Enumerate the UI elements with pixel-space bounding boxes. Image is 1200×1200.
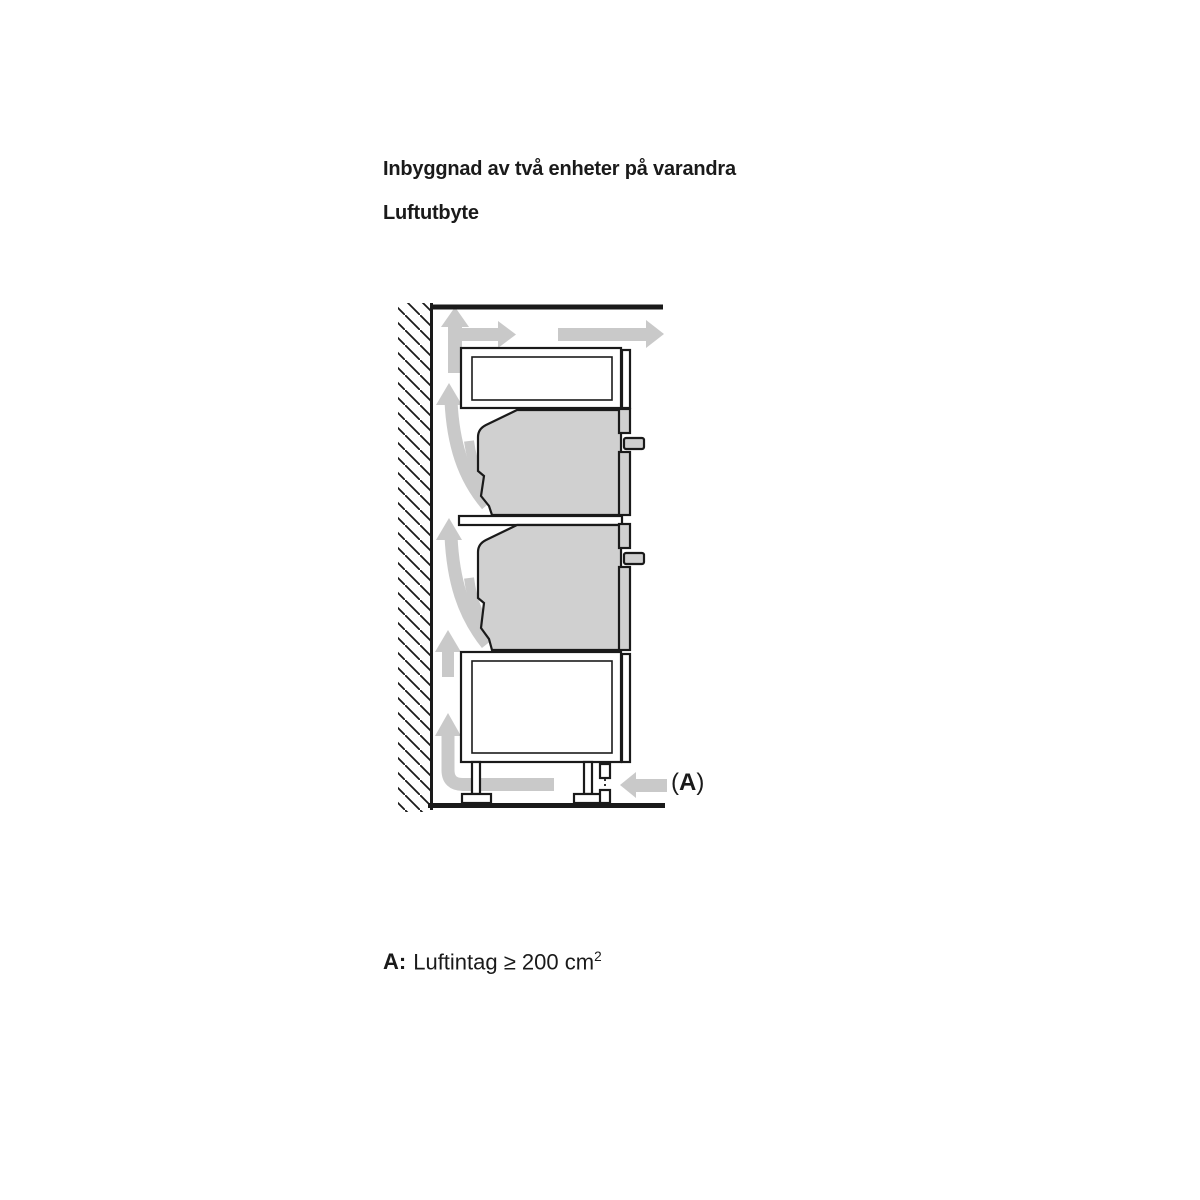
airflow-up-arrow-mid [435, 630, 461, 677]
top-cabinet [461, 348, 630, 408]
caption-superscript: 2 [594, 949, 602, 964]
oven-door-lower [619, 567, 630, 650]
lower-oven [478, 524, 644, 650]
caption-prefix: A: [383, 949, 406, 974]
oven-door-lower [619, 452, 630, 515]
oven-handle-icon [624, 553, 644, 564]
oven-handle-icon [624, 438, 644, 449]
manual-page: Inbyggnad av två enheter på varandra Luf… [0, 0, 1200, 1200]
label-letter-a: A [679, 769, 696, 796]
foot-left-plate [462, 794, 491, 803]
foot-right-shaft [584, 762, 592, 794]
caption-air-inlet: A:Luftintag ≥ 200 cm2 [383, 949, 602, 975]
installation-diagram [0, 0, 1200, 1200]
air-inlet-arrow [620, 772, 667, 798]
oven-door-upper [619, 409, 630, 433]
airflow-right-arrow [558, 320, 664, 348]
base-cabinet [461, 652, 630, 762]
shelf-board [459, 516, 622, 525]
air-inlet-label: (A) [671, 769, 704, 797]
foot-left-shaft [472, 762, 480, 794]
wall-hatching [398, 303, 431, 812]
label-paren-open: ( [671, 769, 679, 796]
oven-door-upper [619, 524, 630, 548]
upper-oven [478, 409, 644, 515]
foot-right-plate [574, 794, 603, 803]
plinth-air-inlet [600, 764, 610, 803]
label-paren-close: ) [696, 769, 704, 796]
caption-text: Luftintag ≥ 200 cm [413, 949, 594, 974]
